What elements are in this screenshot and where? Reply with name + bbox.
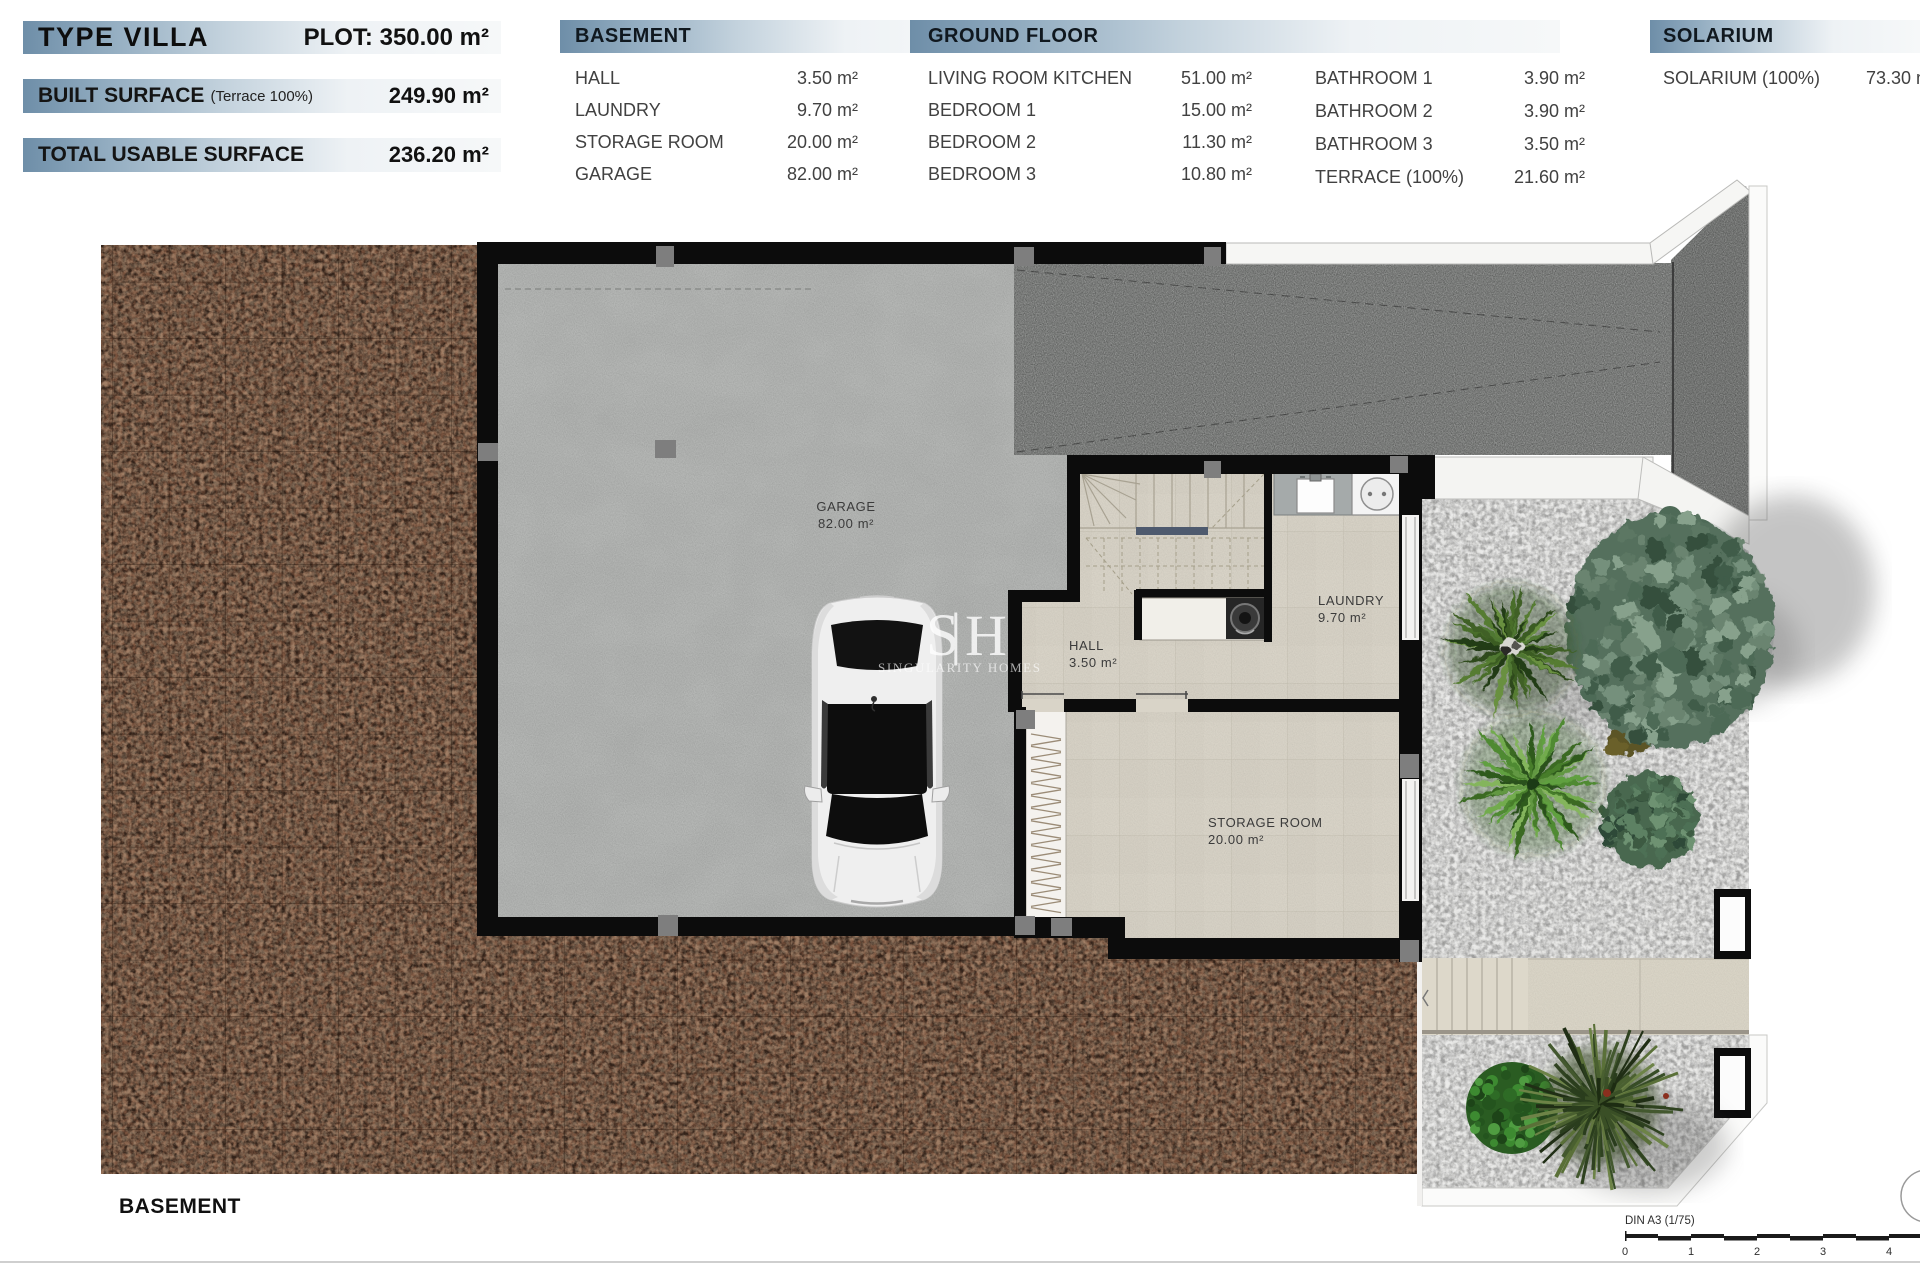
svg-text:H: H: [965, 603, 1007, 668]
svg-text:3: 3: [1820, 1246, 1826, 1258]
svg-text:|: |: [950, 601, 962, 666]
svg-text:2: 2: [1754, 1246, 1760, 1258]
svg-text:1: 1: [1688, 1246, 1694, 1258]
svg-text:4: 4: [1886, 1246, 1892, 1258]
svg-text:0: 0: [1622, 1246, 1628, 1258]
svg-text:SINGULARITY HOMES: SINGULARITY HOMES: [878, 660, 1046, 675]
